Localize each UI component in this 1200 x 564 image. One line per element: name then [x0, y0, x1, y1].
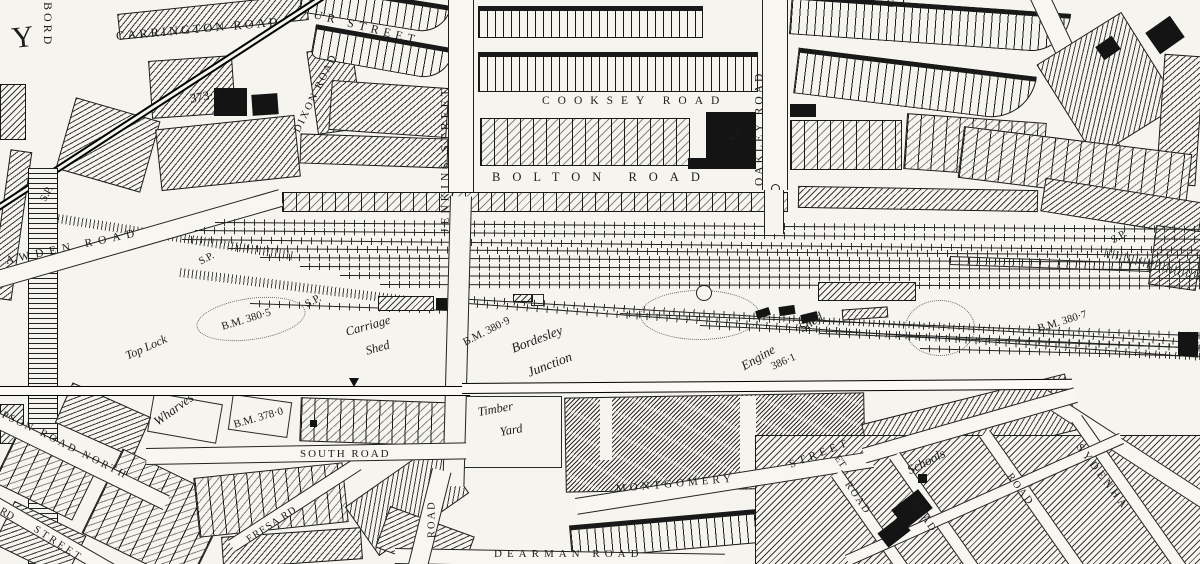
label-gl-partial: GL: [886, 0, 916, 9]
terrace-row: [798, 186, 1038, 212]
building-block: [480, 118, 690, 166]
terrace-row: [282, 192, 788, 212]
label-carriage-shed-line2: Shed: [364, 339, 391, 358]
terrace-row: [478, 6, 703, 38]
os-map-bordesley-junction: Y BORD CARRINGTON ROAD UR STREET DIXON R…: [0, 0, 1200, 564]
canal-lock-symbol: [349, 378, 359, 387]
turntable-symbol: [696, 285, 712, 301]
label-bordesley-junction-line2: Junction: [526, 350, 574, 379]
label-signal-post: S.P.: [198, 251, 217, 268]
building-block: [300, 133, 449, 168]
label-oakley-road: OAKLEY ROAD: [755, 14, 767, 186]
signal-box: [531, 294, 544, 306]
black-building: [310, 420, 317, 427]
building-block: [513, 294, 533, 302]
building-block: [0, 84, 26, 140]
black-building: [1178, 332, 1198, 356]
building-block: [155, 115, 301, 191]
canal: [0, 386, 470, 396]
terrace-row: [478, 52, 758, 92]
label-benchmark-380-9: B.M. 380·9: [462, 315, 512, 348]
black-building: [1145, 16, 1184, 55]
label-road-vertical: ROAD: [428, 482, 439, 538]
canal: [462, 379, 1072, 394]
terrace-row: [789, 0, 1071, 54]
school-building: [918, 474, 927, 483]
school-building: [688, 158, 708, 169]
label-dearman-road: DEARMAN ROAD: [494, 549, 644, 560]
label-bordesley-junction-line1: Bordesley: [510, 323, 565, 355]
rough-ground-boundary: [905, 300, 975, 356]
carriage-shed-building: [378, 296, 434, 311]
black-building: [251, 93, 278, 116]
building-block: [790, 120, 902, 170]
yard-gap: [600, 398, 612, 460]
oakley-road-stub: [764, 190, 784, 234]
label-south-road: SOUTH ROAD: [300, 449, 391, 460]
black-building: [790, 104, 816, 117]
label-district-partial: Y: [10, 22, 35, 54]
label-cooksey-road: COOKSEY ROAD: [542, 96, 727, 108]
railway-track: [380, 281, 1200, 289]
building-block: [299, 397, 460, 447]
label-top-lock: Top Lock: [124, 333, 169, 362]
building-block: [842, 306, 889, 320]
label-jenkins-street: JENKINS STREET: [441, 28, 453, 233]
label-bolton-road: BOLTON ROAD: [492, 171, 712, 184]
label-bord-partial: BORD: [42, 2, 54, 47]
engine-shed-building: [818, 282, 916, 301]
label-carriage-shed-line1: Carriage: [344, 314, 392, 339]
terrace-row: [793, 48, 1037, 123]
building-block: [328, 80, 449, 138]
